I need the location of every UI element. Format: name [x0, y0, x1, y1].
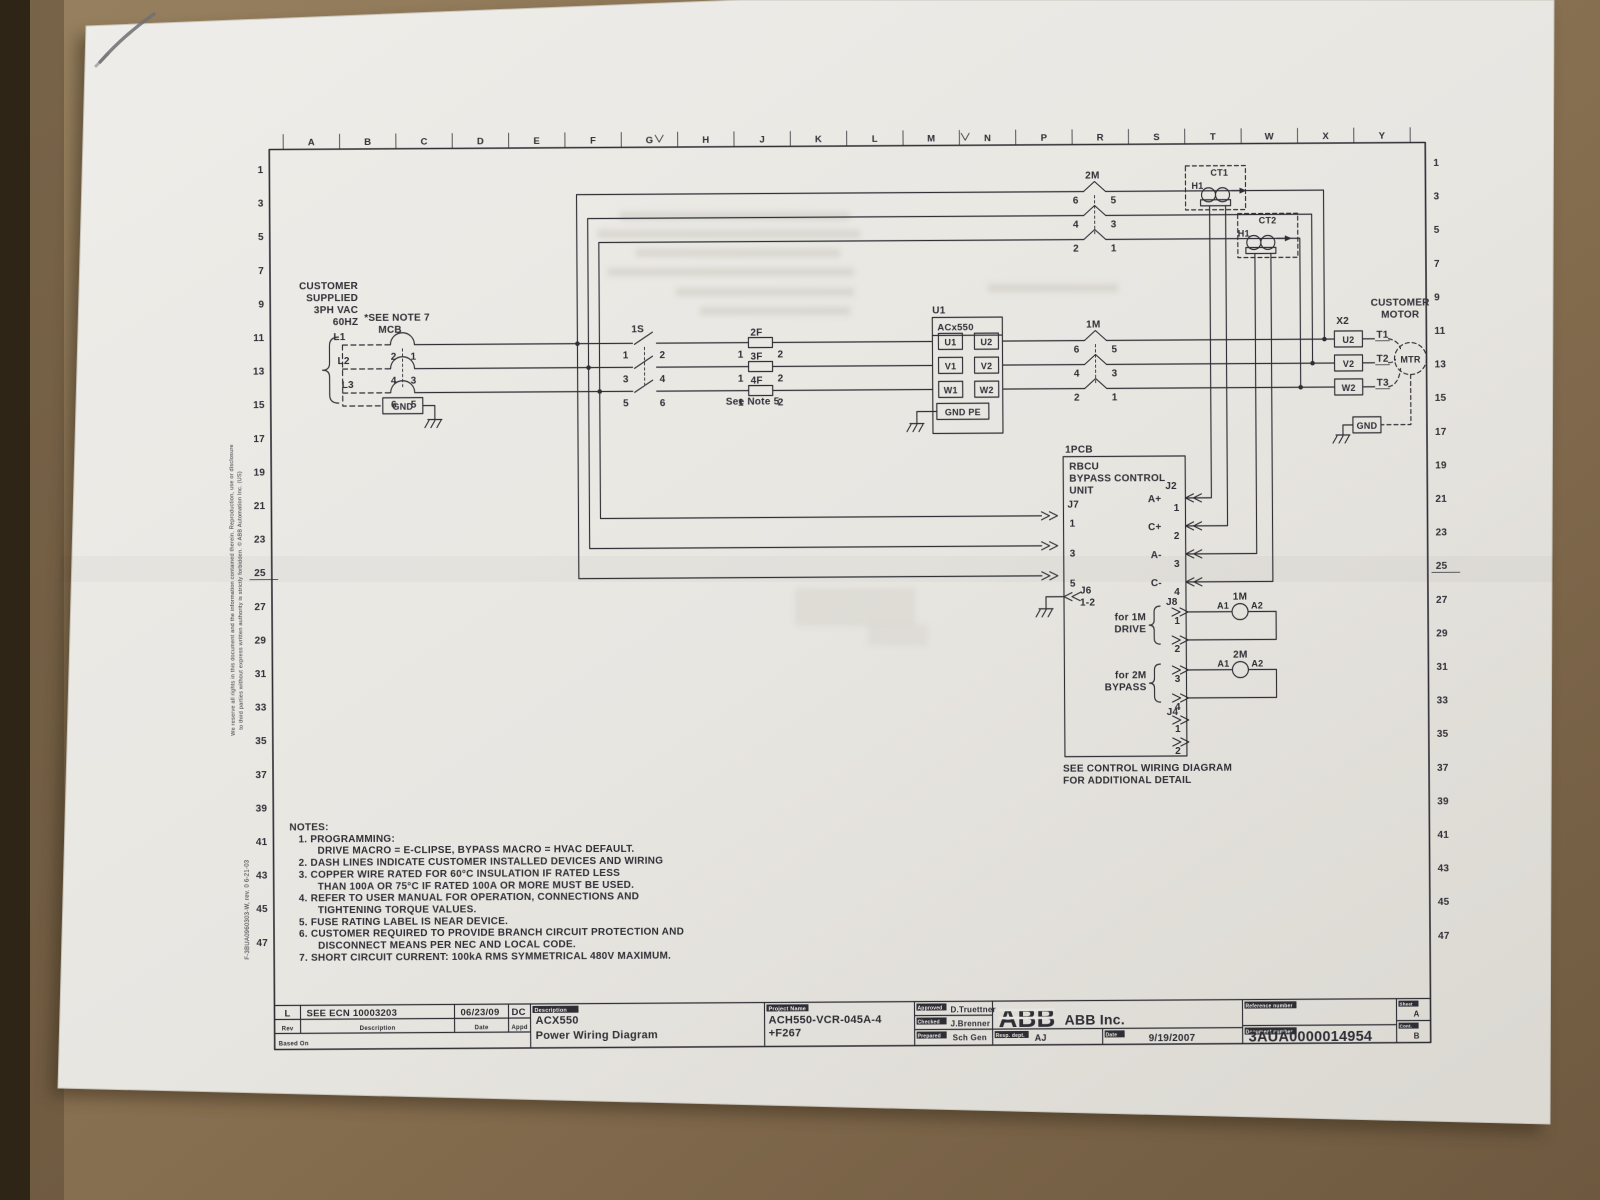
see-control-1: SEE CONTROL WIRING DIAGRAM — [1063, 763, 1232, 775]
1m-pin: 4 — [1074, 369, 1080, 380]
note-line: DRIVE MACRO = E-CLIPSE, BYPASS MACRO = H… — [317, 844, 634, 857]
tb-hdr-prepared: Prepared — [918, 1033, 941, 1039]
customer-motor-1: CUSTOMER — [1371, 297, 1431, 308]
1m-pin: 3 — [1112, 368, 1118, 379]
grid-row-number-left: 13 — [253, 367, 265, 378]
tb-rev-date: 06/23/09 — [460, 1007, 499, 1018]
ct2-h1: H1 — [1238, 229, 1250, 239]
grid-column-letter: J — [759, 135, 765, 146]
grid-row-number-right: 13 — [1435, 359, 1447, 370]
note-line: 1. PROGRAMMING: — [298, 834, 395, 846]
fuse-4f-label: 4F — [751, 376, 763, 387]
tb-hdr-project: Project Name — [768, 1006, 806, 1012]
drive-term: U2 — [980, 337, 992, 347]
grid-column-letter: X — [1322, 131, 1329, 142]
grid-row-number-left: 27 — [254, 602, 266, 613]
supply-line3: 3PH VAC — [314, 305, 358, 316]
tb-rev-value: L — [284, 1008, 290, 1019]
mcb-pin: 1 — [410, 352, 416, 363]
tb-cont-value: B — [1414, 1032, 1420, 1041]
motor-lead: T2 — [1377, 354, 1389, 365]
grid-column-letter: W — [1265, 131, 1274, 142]
tb-checked-by: J.Brenner — [951, 1019, 991, 1028]
j2-sig: C- — [1151, 578, 1162, 589]
j2-sig: A- — [1151, 550, 1162, 561]
grid-row-number-left: 31 — [255, 669, 267, 680]
note-line: 5. FUSE RATING LABEL IS NEAR DEVICE. — [299, 916, 508, 928]
grid-column-letter: R — [1097, 132, 1104, 143]
j4-pin: 1 — [1175, 724, 1181, 735]
2m-pin: 2 — [1073, 244, 1079, 255]
grid-row-number-right: 37 — [1437, 763, 1449, 774]
ct2-label: CT2 — [1259, 215, 1277, 225]
grid-column-letter: N — [984, 133, 991, 144]
j2-sig: C+ — [1148, 522, 1162, 533]
drive-term: W2 — [980, 385, 994, 395]
phase-l3: L3 — [342, 380, 354, 391]
grid-row-number-right: 43 — [1438, 863, 1450, 874]
fuse-pin: 1 — [738, 350, 744, 361]
tb-hdr-resp-dept: Resp. dept. — [996, 1033, 1026, 1039]
grid-row-number-right: 27 — [1436, 595, 1448, 606]
fuse-pin: 1 — [738, 374, 744, 385]
grid-row-number-right: 3 — [1434, 191, 1440, 202]
drive-term: V2 — [981, 361, 993, 371]
tb-project-line1: ACH550-VCR-045A-4 — [769, 1014, 883, 1027]
grid-row-number-left: 45 — [256, 904, 268, 915]
j8-pin: 3 — [1175, 674, 1181, 685]
grid-row-number-left: 11 — [253, 333, 264, 344]
grid-row-number-left: 43 — [256, 871, 268, 882]
desk-edge-strip — [0, 0, 30, 1200]
note-line: 3. COPPER WIRE RATED FOR 60°C INSULATION… — [299, 868, 621, 881]
coil-1m-a2: A2 — [1251, 600, 1263, 610]
motor-gnd: GND — [1357, 421, 1378, 431]
tb-hdr-sheet: Sheet — [1399, 1002, 1413, 1007]
drive-term: U1 — [944, 337, 956, 347]
tb-rev-appd: DC — [511, 1007, 525, 1018]
grid-column-letter: D — [477, 136, 484, 147]
pcb-designator: 1PCB — [1065, 445, 1093, 456]
grid-column-letter: P — [1041, 133, 1048, 144]
grid-column-letter: G — [646, 135, 654, 146]
grid-row-number-left: 25 — [254, 568, 266, 579]
tb-hdr-cont: Cont. — [1400, 1024, 1413, 1029]
j6-pins: 1-2 — [1080, 598, 1095, 609]
paper-fold-shade — [60, 556, 1554, 582]
2m-pin: 1 — [1111, 243, 1117, 254]
1s-pin: 4 — [660, 374, 666, 385]
phase-l2: L2 — [338, 356, 350, 367]
motor-circle-label: MTR — [1400, 355, 1421, 365]
grid-row-number-right: 41 — [1437, 830, 1449, 841]
x2-term: W2 — [1342, 383, 1356, 393]
grid-column-letter: Y — [1379, 131, 1386, 142]
tb-hdr-reference: Reference number — [1245, 1003, 1292, 1009]
grid-row-number-right: 9 — [1434, 292, 1440, 303]
x2-label: X2 — [1336, 316, 1349, 327]
see-note-5: See Note 5 — [726, 396, 780, 407]
grid-row-number-right: 35 — [1437, 729, 1449, 740]
grid-column-letter: T — [1210, 132, 1216, 143]
tb-hdr-description: Description — [534, 1008, 567, 1014]
note-line: DISCONNECT MEANS PER NEC AND LOCAL CODE. — [318, 939, 576, 952]
grid-column-letter: E — [533, 136, 540, 147]
fuse-2f-label: 2F — [750, 328, 762, 339]
tb-description-line1: ACX550 — [536, 1015, 579, 1027]
tb-date-value: 9/19/2007 — [1149, 1033, 1196, 1044]
x2-term: U2 — [1342, 335, 1354, 345]
grid-column-letter: K — [815, 134, 822, 145]
grid-column-letter: M — [927, 133, 935, 144]
grid-row-number-left: 37 — [255, 770, 267, 781]
grid-row-number-right: 39 — [1437, 796, 1449, 807]
grid-row-number-left: 47 — [256, 938, 268, 949]
ct1-h1: H1 — [1191, 181, 1203, 191]
grid-row-number-right: 33 — [1437, 695, 1449, 706]
grid-row-number-left: 41 — [256, 837, 268, 848]
j7-pin: 5 — [1070, 579, 1076, 590]
grid-row-number-left: 23 — [254, 535, 266, 546]
j2-pin: 1 — [1174, 503, 1180, 514]
tb-approved-by: D.Truettner — [950, 1005, 995, 1014]
1m-pin: 2 — [1074, 393, 1080, 404]
2m-pin: 6 — [1073, 196, 1079, 207]
feed-gnd: GND — [392, 402, 413, 412]
grid-column-letter: C — [420, 137, 427, 148]
tb-company: ABB Inc. — [1065, 1011, 1125, 1027]
j2-label: J2 — [1165, 481, 1177, 492]
grid-row-number-right: 5 — [1434, 225, 1440, 236]
tb-rev-description: SEE ECN 10003203 — [306, 1008, 397, 1020]
switch-1s-label: 1S — [631, 324, 644, 335]
j2-pin: 3 — [1174, 559, 1180, 570]
tb-prepared-by: Sch Gen — [953, 1033, 987, 1042]
drive-term: V1 — [945, 361, 957, 371]
j8-bypass: BYPASS — [1105, 682, 1147, 693]
grid-row-number-left: 39 — [256, 803, 268, 814]
note-line: 7. SHORT CIRCUIT CURRENT: 100kA RMS SYMM… — [299, 950, 671, 963]
supply-line1: CUSTOMER — [299, 281, 359, 292]
1m-pin: 6 — [1074, 345, 1080, 356]
grid-row-number-right: 1 — [1433, 158, 1439, 169]
grid-row-number-right: 29 — [1436, 628, 1448, 639]
tb-col-date: Date — [475, 1025, 489, 1031]
2m-pin: 4 — [1073, 220, 1079, 231]
note-line: THAN 100A OR 75°C IF RATED 100A OR MORE … — [318, 880, 634, 893]
photo-of-schematic: CUSTOMERSUPPLIED3PH VAC60HZ*SEE NOTE 7MC… — [0, 0, 1600, 1200]
j4-label: J4 — [1167, 707, 1179, 718]
supply-line2: SUPPLIED — [306, 293, 358, 304]
margin-form-number: F-3BUA0960303-W, rev. 0 6-21-03 — [245, 859, 252, 959]
grid-row-number-left: 21 — [254, 501, 266, 512]
grid-row-number-right: 17 — [1435, 427, 1447, 438]
customer-motor-2: MOTOR — [1381, 310, 1420, 321]
contactor-1m-label: 1M — [1086, 319, 1100, 330]
note-line: TIGHTENING TORQUE VALUES. — [318, 904, 477, 916]
fuse-pin: 2 — [777, 349, 783, 360]
tb-col-rev: Rev — [282, 1026, 294, 1032]
mcb-label: MCB — [378, 325, 402, 336]
grid-row-number-right: 25 — [1436, 561, 1448, 572]
grid-row-number-left: 29 — [255, 635, 267, 646]
tb-sheet-value: A — [1413, 1010, 1419, 1019]
coil-2m-a1: A1 — [1217, 659, 1229, 669]
grid-column-letter: B — [364, 137, 371, 148]
rbcu-3: UNIT — [1069, 486, 1093, 497]
grid-column-letter: F — [590, 136, 596, 147]
tb-based-on: Based On — [279, 1041, 309, 1047]
tb-hdr-date: Date — [1106, 1032, 1118, 1038]
grid-row-number-left: 3 — [258, 199, 264, 210]
j8-for-2m: for 2M — [1115, 670, 1147, 681]
j6-label: J6 — [1080, 586, 1092, 597]
grid-row-number-right: 7 — [1434, 259, 1440, 270]
grid-row-number-left: 9 — [258, 299, 264, 310]
see-control-2: FOR ADDITIONAL DETAIL — [1063, 775, 1191, 787]
grid-column-letter: A — [308, 137, 315, 148]
tb-col-description: Description — [360, 1026, 396, 1032]
tb-doc-number: 3AUA0000014954 — [1249, 1029, 1373, 1046]
motor-lead: T1 — [1376, 330, 1388, 341]
see-note-7: *SEE NOTE 7 — [364, 313, 430, 324]
grid-column-letter: H — [702, 135, 709, 146]
ct1-label: CT1 — [1210, 168, 1228, 178]
j8-drive: DRIVE — [1114, 624, 1146, 635]
1s-pin: 1 — [623, 350, 629, 361]
tb-col-appd: Appd — [511, 1025, 527, 1031]
x2-term: V2 — [1343, 359, 1355, 369]
grid-row-number-left: 33 — [255, 703, 267, 714]
grid-row-number-left: 19 — [254, 467, 266, 478]
mcb-pin: 4 — [391, 376, 397, 387]
fuse-3f-label: 3F — [750, 352, 762, 363]
grid-row-number-left: 5 — [258, 232, 264, 243]
grid-column-letter: S — [1153, 132, 1160, 143]
1m-pin: 5 — [1111, 344, 1117, 355]
coil-1m-label: 1M — [1233, 592, 1247, 603]
1s-pin: 2 — [659, 350, 665, 361]
schematic-scene: CUSTOMERSUPPLIED3PH VAC60HZ*SEE NOTE 7MC… — [0, 0, 1600, 1200]
drive-term: W1 — [944, 385, 958, 395]
grid-row-number-right: 31 — [1436, 662, 1448, 673]
1m-pin: 1 — [1112, 392, 1118, 403]
motor-lead: T3 — [1377, 378, 1389, 389]
grid-row-number-right: 19 — [1435, 460, 1447, 471]
1s-pin: 5 — [623, 398, 629, 409]
grid-row-number-right: 45 — [1438, 897, 1450, 908]
2m-pin: 5 — [1111, 195, 1117, 206]
j4-pin: 2 — [1175, 746, 1181, 757]
j8-label: J8 — [1166, 597, 1178, 608]
grid-row-number-right: 11 — [1434, 326, 1445, 337]
note-line: NOTES: — [289, 822, 328, 833]
mcb-pin: 3 — [411, 376, 417, 387]
j8-pin: 2 — [1174, 644, 1180, 655]
mcb-pin: 2 — [391, 352, 397, 363]
grid-row-number-left: 17 — [253, 434, 265, 445]
grid-column-letter: L — [872, 134, 878, 145]
fuse-pin: 2 — [778, 373, 784, 384]
j8-pin: 1 — [1174, 616, 1180, 627]
grid-row-number-right: 21 — [1435, 494, 1447, 505]
1s-pin: 6 — [660, 398, 666, 409]
abb-logo: ABB — [998, 1003, 1055, 1033]
coil-1m-a1: A1 — [1217, 601, 1229, 611]
tb-project-line2: +F267 — [769, 1027, 802, 1039]
j2-pin: 2 — [1174, 531, 1180, 542]
drive-designator: U1 — [932, 305, 946, 316]
drive-gnd: GND PE — [945, 407, 981, 417]
j7-label: J7 — [1067, 500, 1079, 511]
supply-line4: 60HZ — [333, 317, 359, 328]
2m-pin: 3 — [1111, 219, 1117, 230]
j2-sig: A+ — [1148, 494, 1162, 505]
rbcu-1: RBCU — [1069, 461, 1099, 472]
grid-row-number-right: 23 — [1436, 527, 1448, 538]
note-line: 4. REFER TO USER MANUAL FOR OPERATION, C… — [299, 891, 639, 904]
tb-hdr-checked: Checked — [918, 1019, 940, 1025]
grid-row-number-left: 7 — [258, 266, 264, 277]
tb-resp-dept-value: AJ — [1035, 1033, 1047, 1043]
1s-pin: 3 — [623, 374, 629, 385]
note-line: 6. CUSTOMER REQUIRED TO PROVIDE BRANCH C… — [299, 927, 684, 940]
coil-2m-label: 2M — [1233, 650, 1247, 661]
j7-pin: 3 — [1070, 549, 1076, 560]
rbcu-2: BYPASS CONTROL — [1069, 473, 1165, 485]
drive-type: ACx550 — [937, 322, 973, 333]
grid-row-number-left: 15 — [253, 400, 265, 411]
j7-pin: 1 — [1070, 519, 1076, 530]
coil-2m-a2: A2 — [1251, 658, 1263, 668]
grid-row-number-left: 1 — [258, 165, 264, 176]
grid-row-number-right: 15 — [1435, 393, 1447, 404]
contactor-2m-label: 2M — [1085, 170, 1099, 181]
grid-row-number-right: 47 — [1438, 931, 1450, 942]
j8-for-1m: for 1M — [1115, 612, 1147, 623]
tb-description-line2: Power Wiring Diagram — [536, 1029, 658, 1042]
tb-hdr-approved: Approved — [917, 1005, 942, 1011]
grid-row-number-left: 35 — [255, 736, 267, 747]
phase-l1: L1 — [333, 332, 345, 343]
